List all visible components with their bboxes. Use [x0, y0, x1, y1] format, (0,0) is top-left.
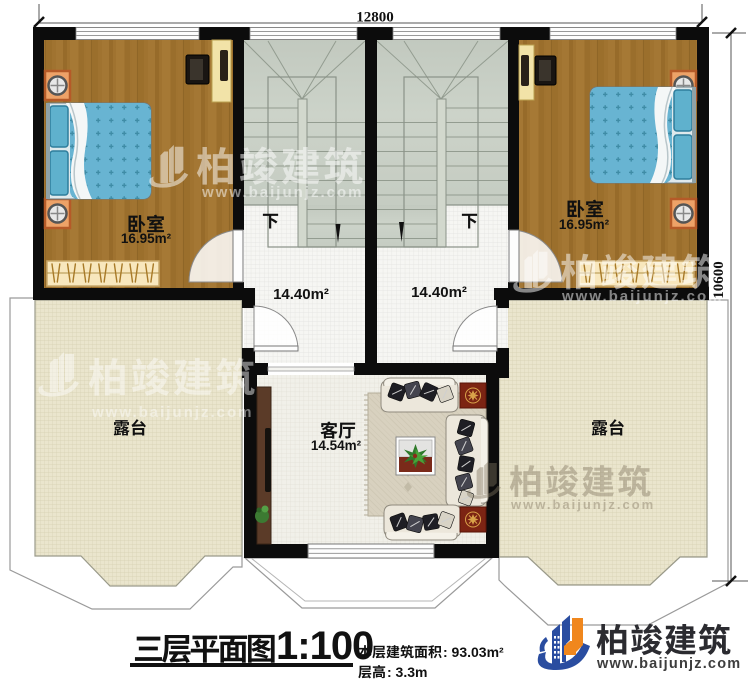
svg-text:1:100: 1:100: [276, 624, 373, 668]
svg-text:www.baijunjz.com: www.baijunjz.com: [510, 497, 655, 512]
svg-text:14.40m²: 14.40m²: [411, 284, 467, 301]
svg-text:14.54m²: 14.54m²: [311, 438, 362, 453]
svg-text:: 3.3m: : 3.3m: [387, 664, 427, 680]
svg-text:12800: 12800: [356, 10, 394, 26]
svg-text:16.95m²: 16.95m²: [121, 231, 172, 246]
svg-text:16.95m²: 16.95m²: [559, 217, 610, 232]
svg-text:: 93.03m²: : 93.03m²: [443, 644, 504, 660]
svg-text:www.baijunjz.com: www.baijunjz.com: [201, 184, 363, 201]
svg-text:10600: 10600: [711, 261, 727, 299]
svg-text:www.baijunjz.com: www.baijunjz.com: [596, 656, 741, 672]
svg-text:www.baijunjz.com: www.baijunjz.com: [91, 404, 253, 421]
svg-text:14.40m²: 14.40m²: [273, 286, 329, 303]
svg-text:www.baijunjz.com: www.baijunjz.com: [561, 288, 723, 305]
